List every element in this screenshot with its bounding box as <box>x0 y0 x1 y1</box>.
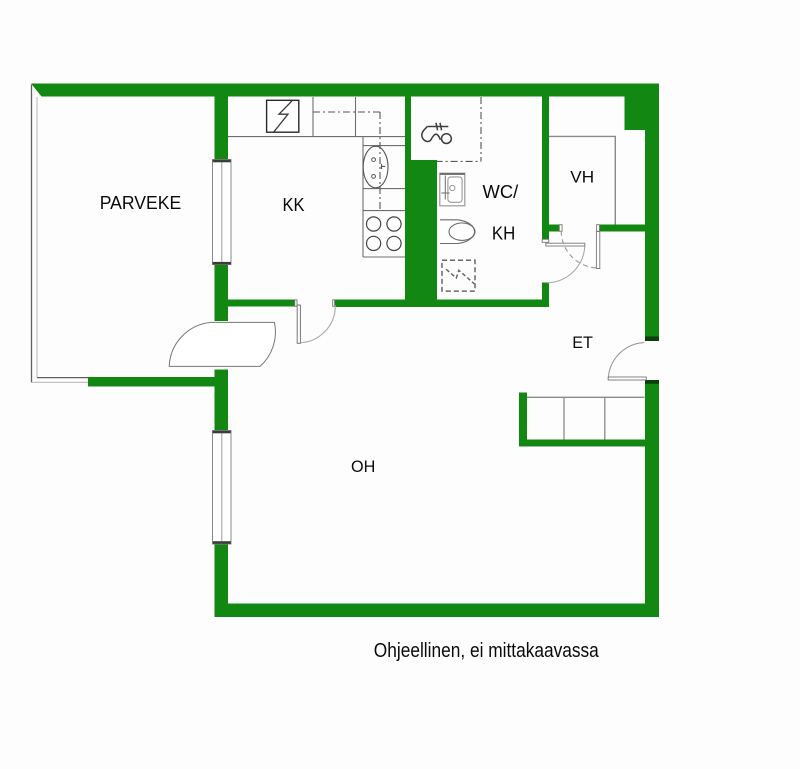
svg-text:VH: VH <box>570 168 594 187</box>
svg-text:KH: KH <box>492 222 515 243</box>
svg-text:KK: KK <box>283 194 306 215</box>
svg-text:ET: ET <box>572 333 593 352</box>
svg-text:Ohjeellinen, ei mittakaavassa: Ohjeellinen, ei mittakaavassa <box>374 639 600 662</box>
svg-text:PARVEKE: PARVEKE <box>100 192 182 213</box>
svg-text:OH: OH <box>351 457 375 476</box>
svg-text:WC/: WC/ <box>483 181 520 202</box>
